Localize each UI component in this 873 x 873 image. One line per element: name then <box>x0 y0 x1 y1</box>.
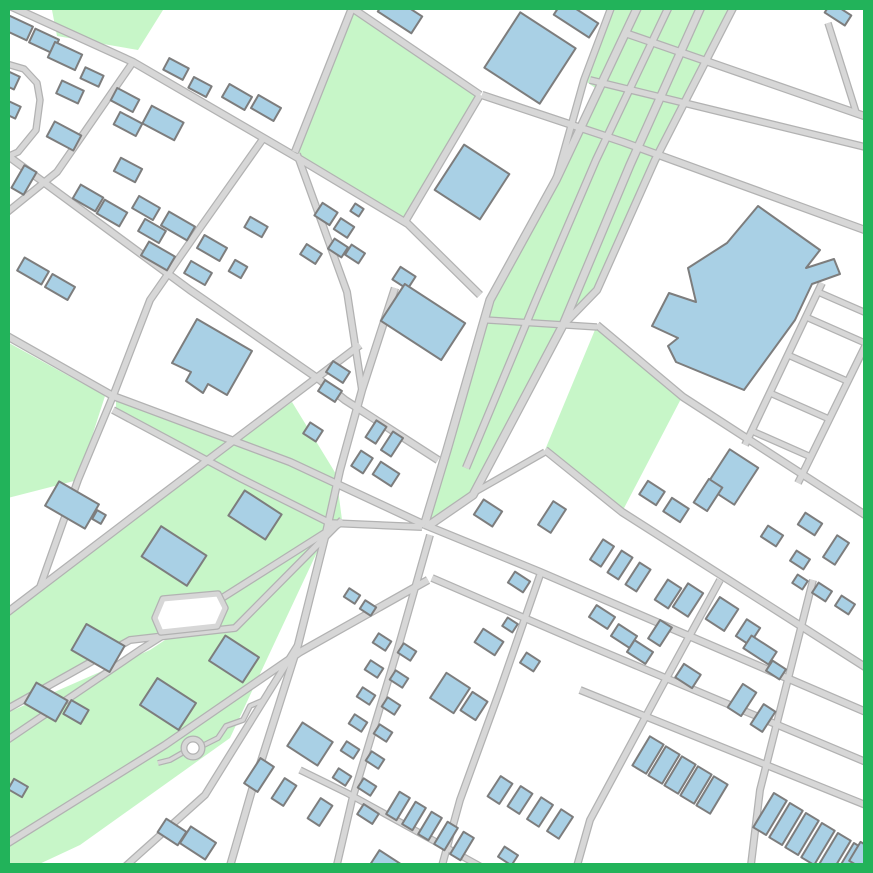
building <box>244 217 267 237</box>
building <box>334 218 354 238</box>
building <box>229 260 248 278</box>
building <box>366 420 387 443</box>
building <box>373 633 392 650</box>
building <box>365 660 384 677</box>
building <box>508 786 533 814</box>
building <box>222 84 252 110</box>
building <box>639 481 664 505</box>
building <box>663 498 688 522</box>
building <box>373 462 400 487</box>
map-viewport <box>0 0 873 873</box>
building <box>114 158 142 183</box>
building <box>0 97 21 118</box>
building <box>474 499 502 526</box>
building <box>141 242 175 271</box>
building <box>47 121 81 150</box>
building <box>790 551 810 570</box>
building <box>508 572 530 593</box>
building <box>17 258 49 285</box>
building <box>835 596 855 615</box>
building <box>333 768 352 785</box>
building <box>350 204 363 217</box>
building <box>475 629 504 655</box>
map-canvas[interactable] <box>0 0 873 873</box>
building <box>498 847 518 866</box>
building <box>3 16 33 41</box>
building <box>357 687 376 704</box>
building <box>554 0 598 37</box>
building <box>538 501 566 533</box>
building <box>589 605 615 629</box>
building <box>349 714 368 731</box>
building <box>694 479 723 511</box>
building <box>163 58 189 80</box>
building <box>381 432 403 457</box>
building <box>502 618 518 633</box>
building <box>625 563 650 592</box>
building <box>48 42 82 70</box>
road <box>770 393 829 419</box>
loop-road <box>155 594 225 632</box>
building <box>308 798 333 826</box>
building <box>488 776 513 804</box>
building <box>607 551 632 580</box>
building <box>341 741 360 758</box>
building <box>184 261 212 285</box>
road <box>788 355 847 381</box>
building <box>351 451 373 474</box>
building <box>142 106 183 141</box>
building <box>823 535 849 564</box>
building <box>80 67 103 86</box>
building <box>527 797 553 826</box>
road <box>575 580 720 873</box>
building <box>45 481 99 528</box>
building <box>287 722 332 765</box>
building <box>520 653 540 672</box>
building <box>251 95 281 121</box>
building <box>45 274 75 300</box>
building <box>114 112 143 136</box>
road <box>806 317 865 343</box>
building <box>111 88 140 112</box>
building <box>272 778 297 806</box>
building <box>197 235 227 261</box>
building <box>798 513 822 536</box>
building <box>825 2 852 25</box>
building <box>547 809 573 838</box>
building-complex <box>172 319 252 395</box>
building <box>344 588 360 603</box>
building <box>484 12 575 103</box>
building <box>244 758 274 792</box>
road <box>818 292 873 316</box>
park-area <box>545 325 683 512</box>
building <box>132 196 160 220</box>
building <box>300 244 322 264</box>
building <box>56 81 84 104</box>
building <box>161 212 195 241</box>
building <box>371 850 402 873</box>
building <box>761 526 783 547</box>
building <box>792 575 808 590</box>
building <box>590 539 614 566</box>
